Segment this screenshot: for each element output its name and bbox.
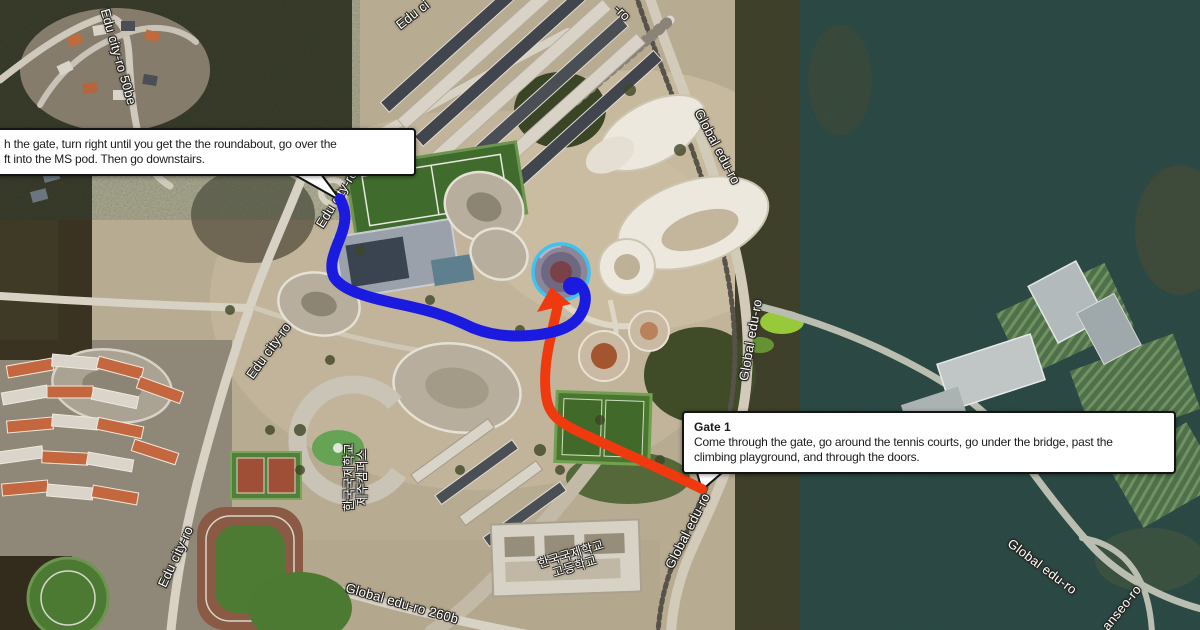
gate1-callout: Gate 1 Come through the gate, go around … [682,411,1176,474]
gate2-route [332,199,586,336]
gate1-callout-line1: Come through the gate, go around the ten… [694,435,1164,450]
gate2-callout-line2: ft into the MS pod. Then go downstairs. [4,152,404,167]
gate2-callout-line1: h the gate, turn right until you get the… [4,137,404,152]
gate2-callout-tail [293,174,341,201]
route-overlay [0,0,1200,630]
gate2-callout: h the gate, turn right until you get the… [0,128,416,176]
gate1-callout-title: Gate 1 [694,420,1164,435]
gate1-callout-line2: climbing playground, and through the doo… [694,450,1164,465]
satellite-map[interactable]: Edu city-ro 50beEdu ci-roGlobal edu-roGl… [0,0,1200,630]
gate2-route-endpoint [563,277,581,295]
